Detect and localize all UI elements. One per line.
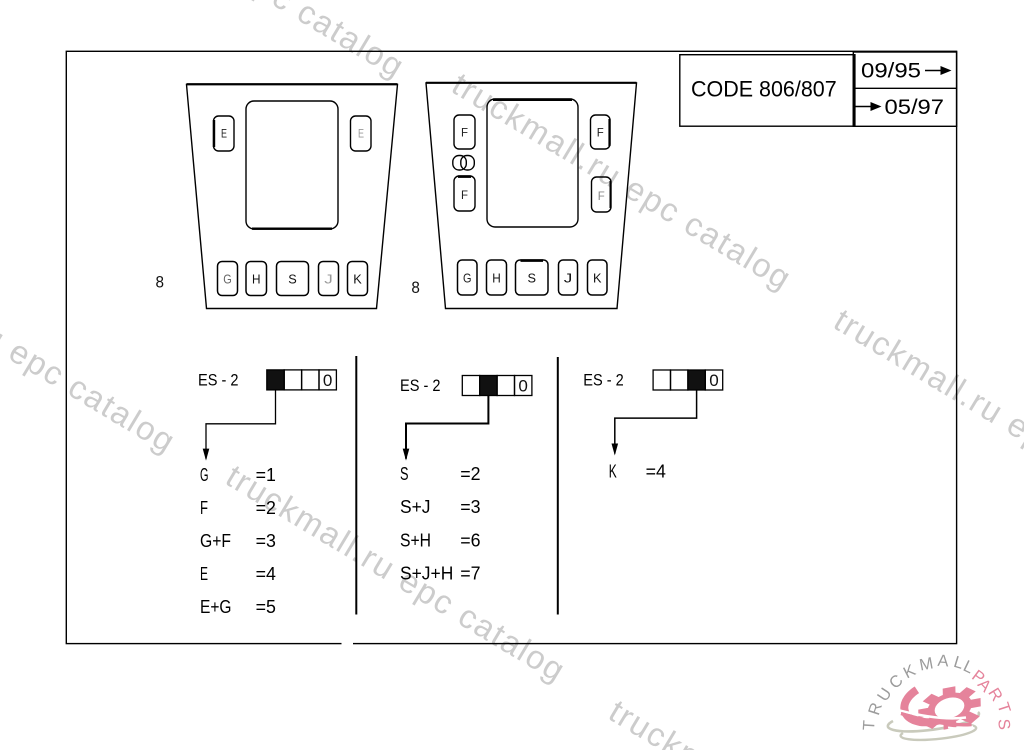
svg-text:A: A bbox=[937, 652, 949, 671]
svg-text:T: T bbox=[860, 720, 879, 731]
svg-text:T: T bbox=[993, 700, 1013, 715]
svg-text:M: M bbox=[918, 654, 935, 674]
svg-text:S: S bbox=[994, 718, 1013, 730]
svg-text:R: R bbox=[865, 700, 886, 717]
svg-text:K: K bbox=[901, 661, 919, 682]
